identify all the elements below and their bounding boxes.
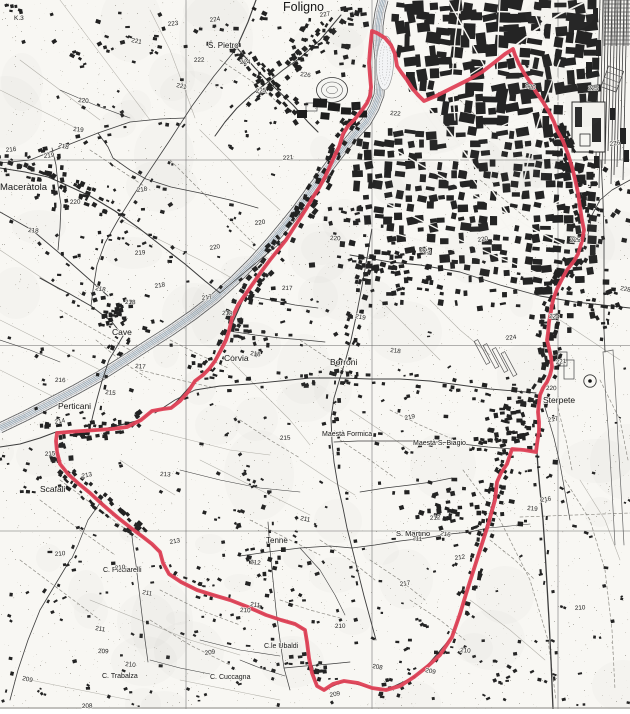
svg-text:224: 224 bbox=[549, 313, 561, 321]
svg-text:217: 217 bbox=[399, 580, 411, 588]
svg-text:212: 212 bbox=[250, 559, 262, 567]
svg-text:216: 216 bbox=[5, 146, 17, 154]
svg-text:210: 210 bbox=[125, 661, 137, 669]
svg-text:224: 224 bbox=[240, 59, 251, 66]
svg-text:211: 211 bbox=[250, 601, 261, 609]
svg-text:Tenne: Tenne bbox=[266, 536, 288, 545]
svg-text:212: 212 bbox=[430, 514, 441, 522]
svg-text:220: 220 bbox=[70, 199, 81, 206]
svg-text:219: 219 bbox=[135, 249, 146, 257]
svg-text:218: 218 bbox=[125, 299, 136, 306]
svg-text:215: 215 bbox=[280, 435, 291, 442]
svg-text:210: 210 bbox=[460, 647, 471, 655]
svg-text:Foligno: Foligno bbox=[283, 0, 324, 14]
svg-text:Borroni: Borroni bbox=[330, 357, 358, 367]
svg-text:210: 210 bbox=[335, 623, 346, 630]
svg-text:224: 224 bbox=[505, 334, 517, 342]
svg-text:219: 219 bbox=[43, 152, 55, 160]
svg-text:S. Pietro: S. Pietro bbox=[208, 41, 239, 50]
svg-text:216: 216 bbox=[55, 377, 66, 384]
svg-text:226: 226 bbox=[300, 71, 312, 79]
svg-text:211: 211 bbox=[412, 535, 423, 543]
svg-text:C. Cuccagna: C. Cuccagna bbox=[210, 674, 251, 681]
svg-text:C. Trabalza: C. Trabalza bbox=[102, 673, 138, 680]
svg-text:210: 210 bbox=[114, 564, 126, 572]
svg-text:Maceràtola: Maceràtola bbox=[0, 182, 48, 193]
svg-text:K.3: K.3 bbox=[14, 15, 24, 22]
svg-text:213: 213 bbox=[160, 471, 171, 479]
svg-text:215: 215 bbox=[45, 450, 56, 458]
svg-text:220: 220 bbox=[78, 97, 90, 105]
svg-text:221: 221 bbox=[283, 154, 295, 162]
svg-text:Scafali: Scafali bbox=[40, 484, 66, 494]
svg-text:225: 225 bbox=[256, 87, 268, 95]
svg-text:208: 208 bbox=[82, 703, 93, 709]
svg-text:210: 210 bbox=[240, 607, 251, 614]
svg-text:225: 225 bbox=[570, 237, 581, 244]
svg-text:220: 220 bbox=[546, 385, 557, 392]
svg-text:215: 215 bbox=[105, 389, 117, 397]
svg-text:217: 217 bbox=[135, 363, 146, 371]
svg-text:219: 219 bbox=[527, 505, 539, 513]
svg-text:Sterpete: Sterpete bbox=[543, 395, 575, 405]
svg-text:210: 210 bbox=[55, 550, 67, 558]
svg-text:218: 218 bbox=[136, 186, 148, 194]
svg-text:209: 209 bbox=[98, 648, 109, 655]
svg-text:Perticani: Perticani bbox=[58, 401, 91, 411]
svg-text:Maestà S. Biagio: Maestà S. Biagio bbox=[413, 440, 466, 447]
svg-text:225: 225 bbox=[588, 85, 599, 92]
svg-text:Cave: Cave bbox=[112, 327, 132, 337]
svg-text:218: 218 bbox=[28, 227, 39, 235]
svg-text:210: 210 bbox=[575, 604, 586, 612]
svg-text:222: 222 bbox=[194, 57, 205, 64]
svg-text:Corvia: Corvia bbox=[224, 353, 249, 363]
svg-text:218: 218 bbox=[390, 347, 402, 355]
svg-text:220: 220 bbox=[254, 219, 266, 227]
svg-text:217: 217 bbox=[282, 285, 293, 292]
svg-text:218: 218 bbox=[222, 310, 233, 318]
svg-text:C.le Ubaldi: C.le Ubaldi bbox=[264, 643, 299, 650]
svg-text:Maestà Formica: Maestà Formica bbox=[322, 431, 372, 438]
svg-text:223: 223 bbox=[167, 20, 179, 28]
svg-text:222: 222 bbox=[390, 110, 401, 118]
svg-text:221: 221 bbox=[555, 358, 567, 366]
svg-text:220: 220 bbox=[330, 235, 341, 242]
svg-text:219: 219 bbox=[73, 126, 85, 134]
